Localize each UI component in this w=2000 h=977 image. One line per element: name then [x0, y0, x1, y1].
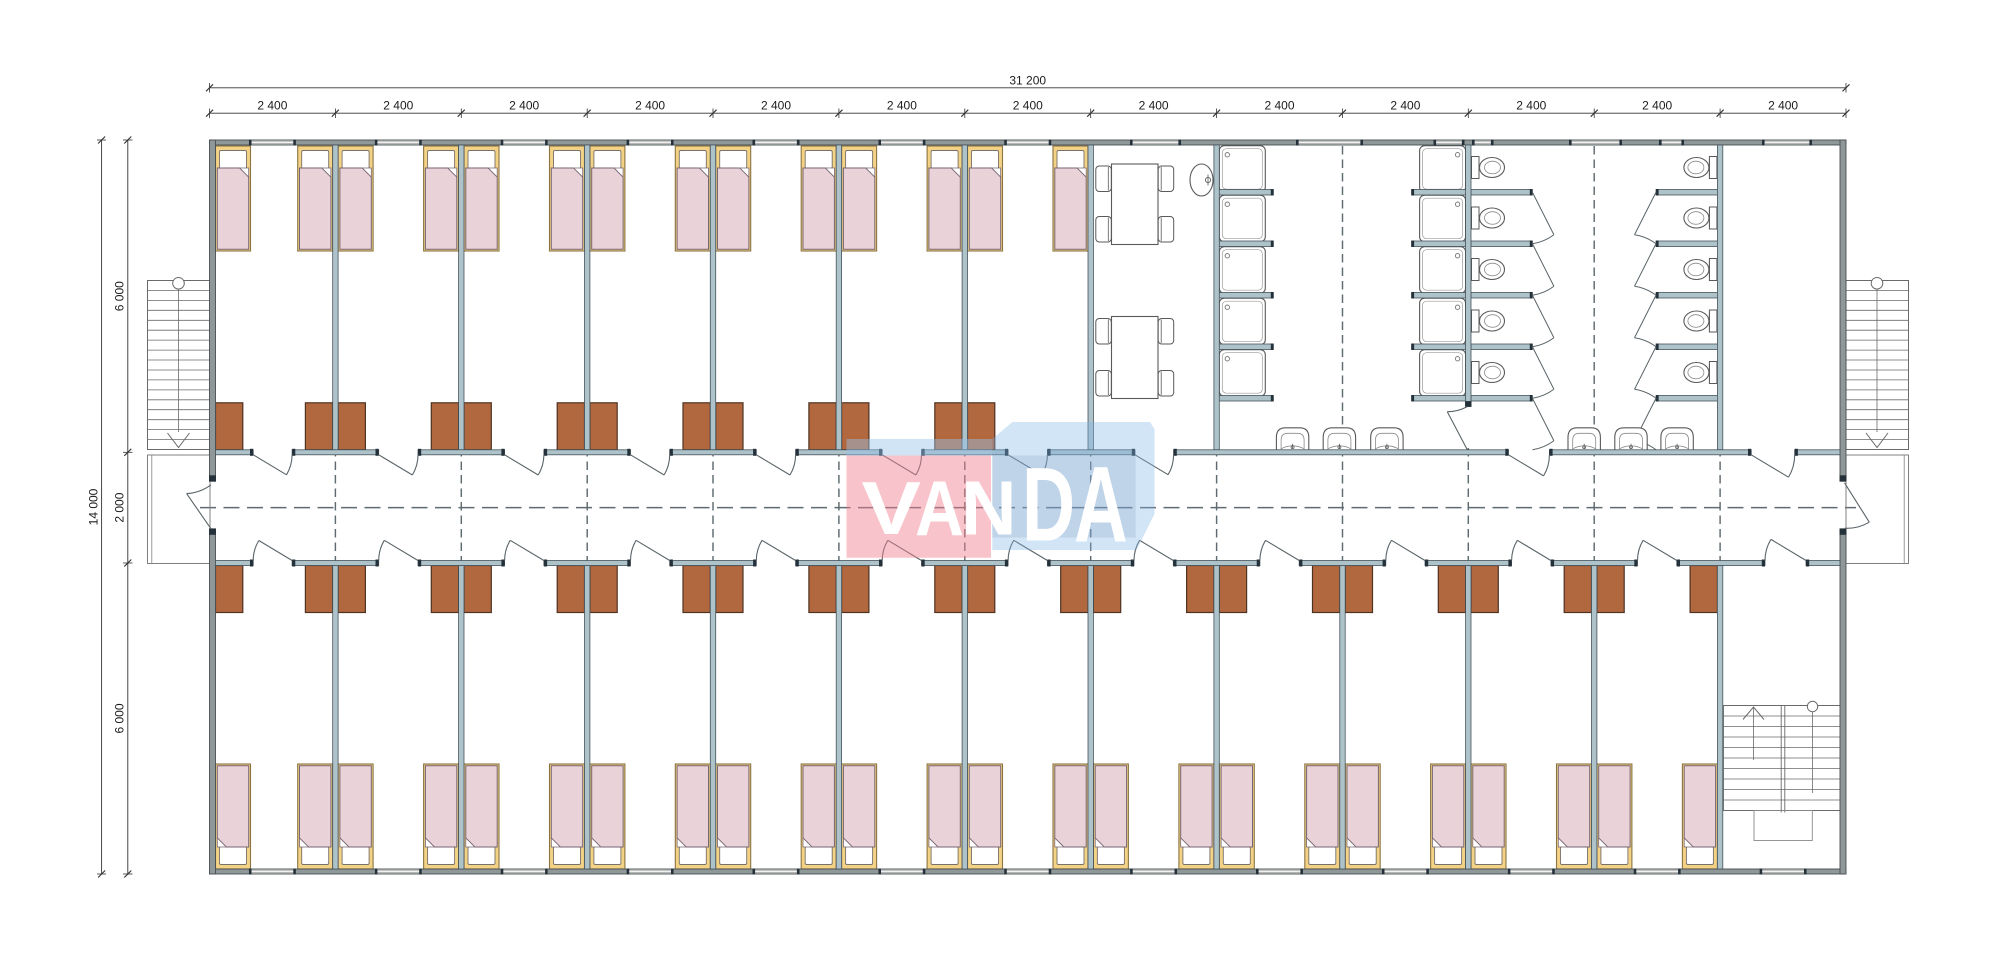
svg-text:N: N	[961, 466, 1017, 552]
svg-text:14 000: 14 000	[87, 488, 101, 525]
svg-text:31 200: 31 200	[1009, 74, 1046, 88]
svg-text:D: D	[1022, 447, 1075, 564]
svg-text:6 000: 6 000	[113, 703, 127, 733]
svg-text:2 400: 2 400	[1139, 99, 1169, 113]
svg-text:6 000: 6 000	[113, 281, 127, 311]
svg-text:2 400: 2 400	[1013, 99, 1043, 113]
svg-text:2 400: 2 400	[1390, 99, 1420, 113]
svg-text:2 400: 2 400	[761, 99, 791, 113]
svg-text:2 400: 2 400	[887, 99, 917, 113]
svg-text:2 400: 2 400	[635, 99, 665, 113]
svg-text:2 400: 2 400	[383, 99, 413, 113]
svg-text:2 000: 2 000	[113, 492, 127, 522]
svg-text:2 400: 2 400	[257, 99, 287, 113]
svg-text:A: A	[1074, 444, 1128, 565]
svg-text:2 400: 2 400	[509, 99, 539, 113]
svg-text:A: A	[915, 466, 964, 552]
svg-text:2 400: 2 400	[1264, 99, 1294, 113]
svg-text:2 400: 2 400	[1516, 99, 1546, 113]
svg-text:2 400: 2 400	[1642, 99, 1672, 113]
svg-text:2 400: 2 400	[1768, 99, 1798, 113]
svg-text:V: V	[862, 467, 922, 551]
